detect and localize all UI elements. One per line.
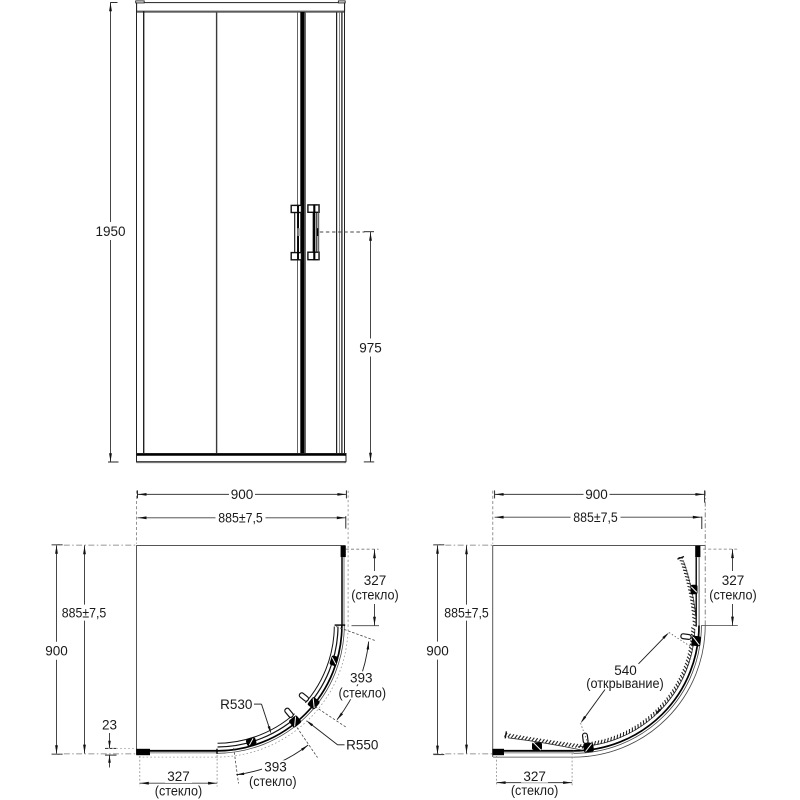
svg-text:(стекло): (стекло) (155, 784, 203, 799)
svg-text:393: 393 (350, 671, 373, 686)
svg-text:(стекло): (стекло) (339, 685, 387, 700)
svg-text:(открывание): (открывание) (586, 676, 664, 691)
svg-text:R550: R550 (346, 738, 378, 753)
svg-text:327: 327 (167, 769, 190, 784)
svg-text:327: 327 (523, 769, 546, 784)
svg-text:(стекло): (стекло) (511, 783, 559, 798)
svg-text:(стекло): (стекло) (249, 774, 297, 789)
svg-text:900: 900 (231, 487, 254, 502)
svg-text:900: 900 (45, 644, 68, 659)
svg-text:393: 393 (264, 760, 287, 775)
svg-text:885±7,5: 885±7,5 (444, 605, 489, 620)
svg-text:327: 327 (364, 573, 387, 588)
svg-text:327: 327 (722, 573, 745, 588)
svg-text:885±7,5: 885±7,5 (62, 605, 107, 620)
svg-text:(стекло): (стекло) (351, 587, 399, 602)
svg-text:885±7,5: 885±7,5 (573, 510, 618, 525)
svg-text:R530: R530 (220, 697, 252, 712)
svg-text:975: 975 (359, 340, 382, 355)
svg-text:1950: 1950 (95, 224, 125, 239)
svg-text:23: 23 (102, 717, 117, 732)
svg-text:885±7,5: 885±7,5 (218, 511, 263, 526)
svg-text:900: 900 (585, 487, 608, 502)
svg-text:(стекло): (стекло) (709, 587, 757, 602)
svg-text:900: 900 (426, 643, 449, 658)
